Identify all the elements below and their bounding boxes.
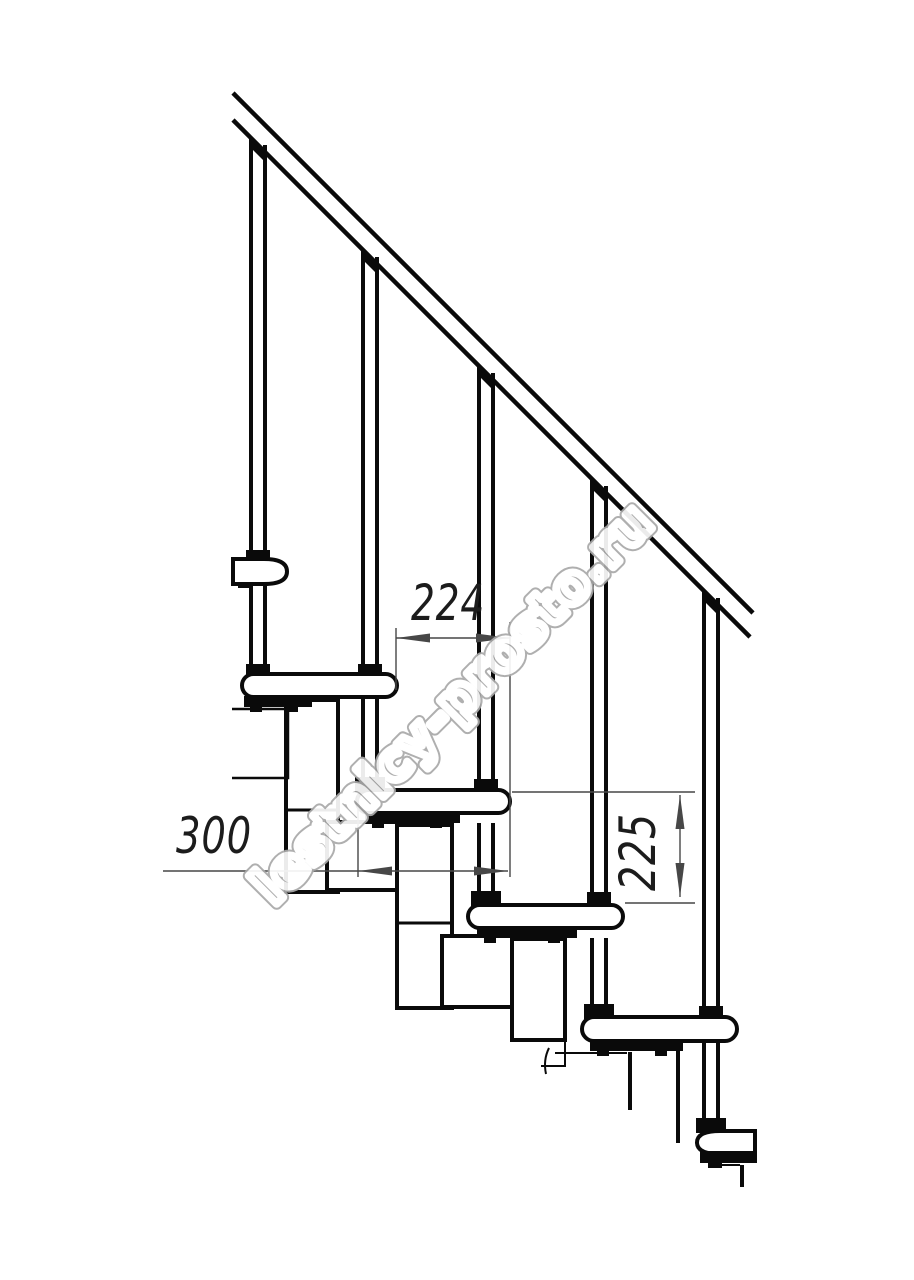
bracket-under-tread-5 bbox=[590, 1040, 683, 1056]
baluster-4-collar bbox=[587, 892, 611, 903]
tread-1-landing-cut bbox=[233, 559, 287, 584]
support-post-under-tread-5 bbox=[698, 1041, 724, 1131]
dimension-224-label: 224 bbox=[411, 574, 485, 632]
baluster-1-collar bbox=[246, 664, 270, 675]
baluster-5-collar bbox=[699, 1006, 723, 1017]
baluster-5 bbox=[704, 598, 718, 1017]
dimension-225: 225 bbox=[512, 792, 695, 903]
module-break-curve-1 bbox=[545, 1048, 549, 1074]
tread-5 bbox=[582, 1017, 737, 1041]
baluster-1 bbox=[251, 145, 265, 675]
tread-2 bbox=[242, 674, 397, 697]
arrowhead-left bbox=[396, 634, 430, 643]
bracket-under-tread-1 bbox=[238, 583, 250, 588]
module-square-2 bbox=[442, 936, 520, 1007]
arrowhead-down bbox=[676, 863, 685, 897]
baluster-1-collar-landing bbox=[246, 550, 270, 560]
baluster-2-collar bbox=[358, 664, 382, 675]
baluster-2 bbox=[363, 257, 377, 675]
baluster-3-collar bbox=[474, 779, 498, 790]
staircase-elevation-drawing: 224 300 225 lestnicy-prosto.ru lestnicy-… bbox=[0, 0, 914, 1280]
technical-drawing-page: 224 300 225 lestnicy-prosto.ru lestnicy-… bbox=[0, 0, 914, 1280]
support-post-under-tread-4 bbox=[586, 938, 612, 1017]
module-tube-3 bbox=[512, 939, 565, 1040]
tread-6-bottom-cut bbox=[697, 1131, 755, 1154]
upper-landing-beam-cut bbox=[232, 709, 288, 778]
support-post-under-tread-3 bbox=[473, 823, 499, 905]
dimension-225-label: 225 bbox=[609, 813, 667, 891]
dimension-300-label: 300 bbox=[176, 807, 252, 865]
arrowhead-up bbox=[676, 795, 685, 829]
tread-4 bbox=[468, 905, 623, 928]
